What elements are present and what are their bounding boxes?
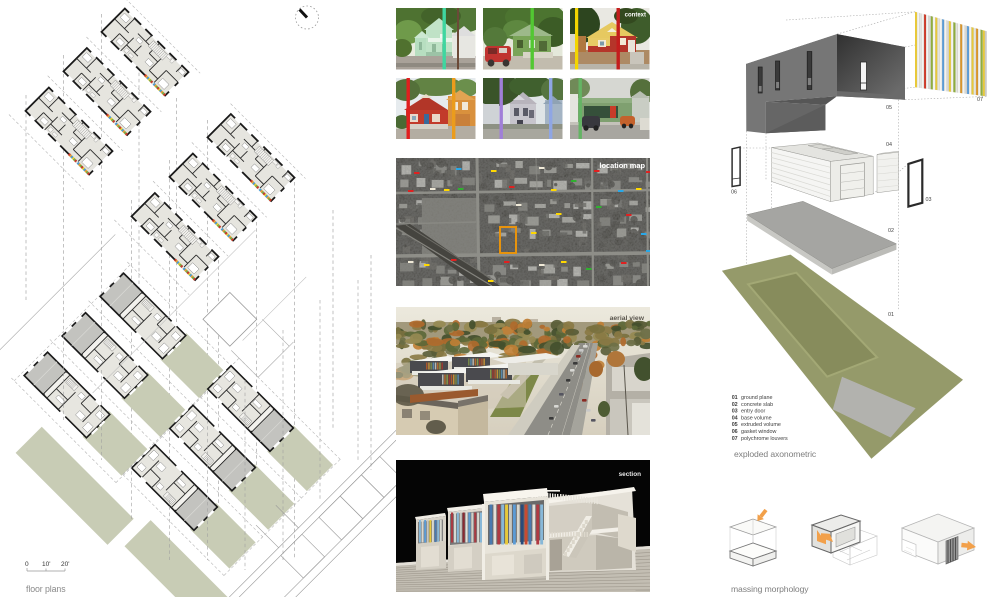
svg-text:entry door: entry door: [741, 409, 765, 415]
svg-text:10': 10': [42, 561, 50, 568]
svg-text:04: 04: [886, 142, 892, 148]
svg-text:07: 07: [732, 436, 738, 442]
svg-text:section: section: [619, 471, 641, 478]
svg-text:06: 06: [732, 429, 738, 435]
svg-text:05: 05: [732, 422, 738, 428]
svg-text:0: 0: [25, 561, 29, 568]
svg-text:gasket window: gasket window: [741, 429, 776, 435]
svg-text:concrete slab: concrete slab: [741, 402, 773, 408]
svg-text:01: 01: [732, 395, 738, 401]
svg-text:location map: location map: [599, 161, 645, 170]
svg-text:floor plans: floor plans: [26, 584, 66, 594]
svg-text:massing morphology: massing morphology: [731, 584, 809, 594]
svg-text:07: 07: [977, 97, 983, 103]
svg-text:base volume: base volume: [741, 415, 772, 421]
svg-text:20': 20': [61, 561, 69, 568]
svg-text:01: 01: [888, 312, 894, 318]
svg-text:context: context: [625, 13, 646, 19]
svg-text:exploded axonometric: exploded axonometric: [734, 449, 817, 459]
svg-text:ground plane: ground plane: [741, 395, 772, 401]
svg-text:extruded volume: extruded volume: [741, 422, 781, 428]
svg-text:06: 06: [731, 190, 737, 196]
svg-text:02: 02: [888, 228, 894, 234]
svg-text:aerial view: aerial view: [610, 315, 645, 322]
svg-text:05: 05: [886, 105, 892, 111]
svg-text:polychrome louvers: polychrome louvers: [741, 436, 788, 442]
svg-text:02: 02: [732, 402, 738, 408]
svg-text:04: 04: [732, 415, 738, 421]
svg-text:03: 03: [732, 409, 738, 415]
svg-text:03: 03: [926, 197, 932, 203]
